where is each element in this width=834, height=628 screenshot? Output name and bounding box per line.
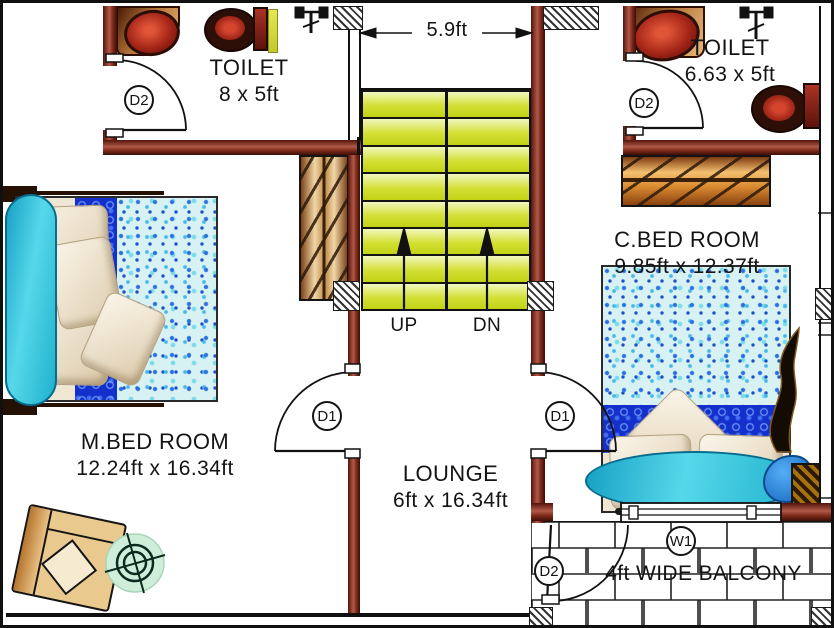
room-name: C.BED ROOM [587, 227, 787, 254]
wardrobe [299, 155, 349, 301]
room-label-lounge: LOUNGE 6ft x 16.34ft [353, 461, 548, 513]
staircase [361, 88, 531, 311]
hatch-column [333, 281, 360, 311]
shower-icon [295, 7, 328, 33]
wall-segment [103, 6, 117, 66]
wall-segment [531, 311, 545, 376]
room-name: TOILET [642, 35, 818, 62]
room-dimensions: 9.85ft x 12.37ft [587, 254, 787, 280]
room-label-toilet-right: TOILET 6.63 x 5ft [642, 35, 818, 87]
stair-up-label: UP [387, 314, 421, 337]
floor-plan: TOILET 8 x 5ft TOILET 6.63 x 5ft M.BED R… [0, 0, 834, 628]
hatch-column [333, 6, 363, 30]
wall-segment [623, 140, 834, 155]
hatch-column [529, 607, 553, 627]
chair-cushion [41, 539, 97, 595]
toilet-wc-bowl [763, 95, 795, 121]
room-label-toilet-left: TOILET 8 x 5ft [161, 55, 337, 107]
hatch-column [815, 288, 834, 320]
room-label-m-bedroom: M.BED ROOM 12.24ft x 16.34ft [55, 429, 255, 481]
stair-down-label: DN [470, 314, 504, 337]
door-tag-d2: D2 [124, 85, 154, 115]
wardrobe [621, 155, 771, 207]
room-dimensions: 12.24ft x 16.34ft [55, 456, 255, 482]
room-name: TOILET [161, 55, 337, 82]
stair-flight-down [448, 90, 530, 309]
room-dimensions: 6ft x 16.34ft [353, 488, 548, 514]
window-tag-w1: W1 [666, 526, 696, 556]
toilet-wc-bowl [215, 16, 245, 40]
chair-backrest [13, 506, 52, 595]
wall-segment [819, 6, 834, 503]
door-tag-d1: D1 [312, 401, 342, 431]
door-tag-d2: D2 [534, 556, 564, 586]
round-stool [103, 531, 167, 595]
wall-segment [103, 140, 361, 155]
hatch-column [543, 6, 599, 30]
hatch-column [811, 607, 834, 627]
hatch-column [527, 281, 554, 311]
child-bed-base [615, 508, 777, 515]
toilet-cistern [253, 7, 268, 51]
room-label-c-bedroom: C.BED ROOM 9.85ft x 12.37ft [587, 227, 787, 279]
door-tag-d1: D1 [545, 401, 575, 431]
toilet-partition [268, 9, 278, 53]
room-label-balcony: 4ft WIDE BALCONY [581, 561, 826, 587]
stair-width-dimension: 5.9ft [412, 18, 482, 42]
room-name: M.BED ROOM [55, 429, 255, 456]
room-dimensions: 8 x 5ft [161, 82, 337, 108]
stair-flight-up [363, 90, 448, 309]
wall-line [6, 613, 531, 617]
wall-segment [781, 503, 834, 521]
room-name: LOUNGE [353, 461, 548, 488]
wall-segment [623, 6, 636, 61]
wall-segment [348, 155, 360, 376]
child-bed-blanket-pattern [603, 267, 789, 407]
door-tag-d2: D2 [629, 88, 659, 118]
room-dimensions: 6.63 x 5ft [642, 62, 818, 88]
master-bed-headboard [5, 194, 57, 406]
wall-segment [531, 6, 545, 281]
